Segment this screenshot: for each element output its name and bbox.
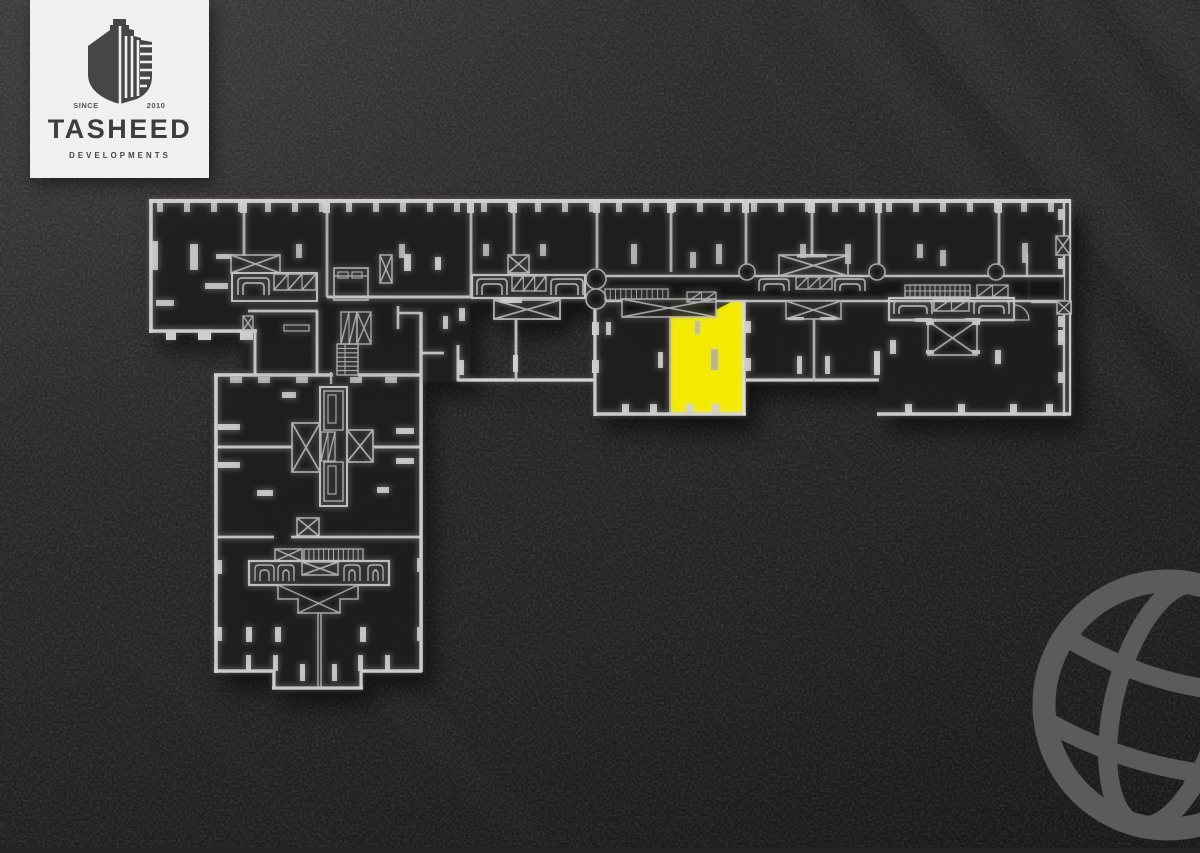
- svg-text:TASHEED: TASHEED: [48, 114, 193, 144]
- svg-text:SINCE: SINCE: [73, 101, 98, 110]
- svg-text:DEVELOPMENTS: DEVELOPMENTS: [69, 151, 171, 160]
- svg-text:2010: 2010: [147, 101, 166, 110]
